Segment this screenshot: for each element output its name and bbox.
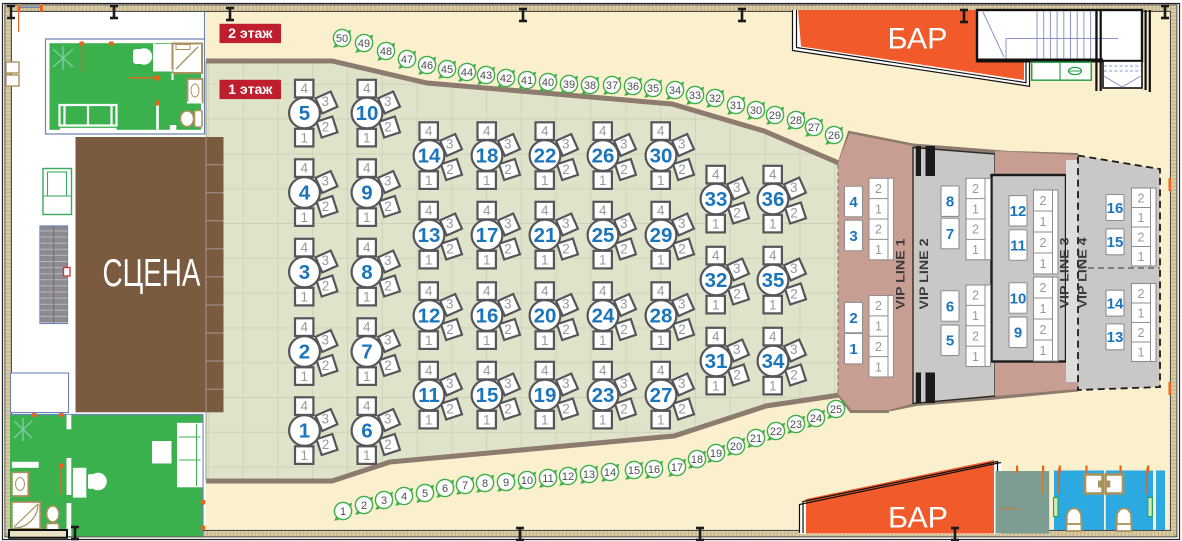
svg-text:2: 2 xyxy=(678,242,686,257)
svg-text:2: 2 xyxy=(1040,281,1047,295)
svg-text:2: 2 xyxy=(446,322,454,337)
svg-text:2: 2 xyxy=(562,402,570,417)
svg-text:2: 2 xyxy=(1138,326,1145,340)
svg-text:7: 7 xyxy=(361,341,372,364)
svg-text:10: 10 xyxy=(521,475,533,487)
svg-text:1 этаж: 1 этаж xyxy=(228,82,273,98)
svg-text:2: 2 xyxy=(733,206,741,221)
svg-text:5: 5 xyxy=(946,333,954,350)
svg-text:4: 4 xyxy=(712,329,720,344)
svg-text:2: 2 xyxy=(972,289,979,303)
svg-text:2: 2 xyxy=(446,242,454,257)
svg-text:БАР: БАР xyxy=(888,23,948,56)
svg-text:1: 1 xyxy=(1138,211,1145,225)
svg-text:9: 9 xyxy=(1014,325,1022,342)
svg-text:2: 2 xyxy=(504,162,512,177)
svg-text:2: 2 xyxy=(562,162,570,177)
svg-text:1: 1 xyxy=(599,412,607,427)
svg-text:4: 4 xyxy=(425,203,433,218)
svg-text:1: 1 xyxy=(657,173,665,188)
svg-text:44: 44 xyxy=(461,67,473,79)
svg-text:35: 35 xyxy=(647,83,659,95)
svg-text:1: 1 xyxy=(300,369,308,384)
svg-text:29: 29 xyxy=(650,224,673,247)
svg-text:3: 3 xyxy=(384,412,392,427)
svg-text:2: 2 xyxy=(733,368,741,383)
svg-text:1: 1 xyxy=(340,506,346,518)
svg-text:2: 2 xyxy=(875,223,882,237)
svg-text:18: 18 xyxy=(476,145,499,168)
svg-text:39: 39 xyxy=(563,79,575,91)
svg-text:1: 1 xyxy=(300,289,308,304)
svg-text:20: 20 xyxy=(730,441,742,453)
svg-text:34: 34 xyxy=(762,350,785,373)
svg-text:14: 14 xyxy=(418,145,441,168)
svg-text:1: 1 xyxy=(1040,215,1047,229)
svg-text:31: 31 xyxy=(705,350,728,373)
svg-text:4: 4 xyxy=(425,124,433,139)
svg-text:28: 28 xyxy=(790,115,802,127)
svg-text:2: 2 xyxy=(678,162,686,177)
svg-text:3: 3 xyxy=(620,376,628,391)
svg-text:1: 1 xyxy=(363,448,371,463)
svg-text:2: 2 xyxy=(384,279,392,294)
svg-text:4: 4 xyxy=(769,329,777,344)
svg-text:4: 4 xyxy=(483,203,491,218)
svg-text:4: 4 xyxy=(657,363,665,378)
svg-text:8: 8 xyxy=(946,194,954,211)
svg-text:3: 3 xyxy=(562,376,570,391)
svg-text:4: 4 xyxy=(401,491,407,503)
svg-text:3: 3 xyxy=(446,137,454,152)
svg-text:2: 2 xyxy=(972,182,979,196)
svg-text:16: 16 xyxy=(476,305,499,328)
svg-text:4: 4 xyxy=(425,363,433,378)
svg-text:30: 30 xyxy=(650,145,673,168)
svg-text:27: 27 xyxy=(808,122,820,134)
svg-text:2: 2 xyxy=(875,340,882,354)
svg-text:22: 22 xyxy=(770,426,782,438)
svg-text:2: 2 xyxy=(620,322,628,337)
svg-text:3: 3 xyxy=(790,180,798,195)
svg-text:2 этаж: 2 этаж xyxy=(228,26,273,42)
svg-text:1: 1 xyxy=(541,173,549,188)
svg-text:36: 36 xyxy=(762,188,785,211)
svg-text:26: 26 xyxy=(828,130,840,142)
svg-text:3: 3 xyxy=(733,180,741,195)
svg-text:1: 1 xyxy=(712,297,720,312)
svg-text:4: 4 xyxy=(363,81,371,96)
svg-text:3: 3 xyxy=(504,376,512,391)
svg-text:2: 2 xyxy=(733,287,741,302)
svg-text:2: 2 xyxy=(620,162,628,177)
svg-text:1: 1 xyxy=(712,378,720,393)
svg-text:29: 29 xyxy=(769,110,781,122)
svg-text:36: 36 xyxy=(627,81,639,93)
svg-text:1: 1 xyxy=(300,210,308,225)
svg-text:4: 4 xyxy=(483,124,491,139)
svg-text:1: 1 xyxy=(1040,302,1047,316)
svg-text:VIP LINE 2: VIP LINE 2 xyxy=(919,239,931,310)
svg-text:49: 49 xyxy=(358,38,370,50)
svg-text:1: 1 xyxy=(363,210,371,225)
svg-text:2: 2 xyxy=(384,199,392,214)
svg-text:2: 2 xyxy=(504,242,512,257)
svg-text:3: 3 xyxy=(504,297,512,312)
svg-text:4: 4 xyxy=(769,167,777,182)
svg-text:25: 25 xyxy=(592,224,615,247)
svg-text:17: 17 xyxy=(476,224,499,247)
svg-text:3: 3 xyxy=(790,261,798,276)
svg-text:3: 3 xyxy=(322,412,330,427)
svg-text:3: 3 xyxy=(384,253,392,268)
svg-text:42: 42 xyxy=(500,73,512,85)
svg-text:4: 4 xyxy=(300,320,308,335)
svg-text:14: 14 xyxy=(1107,296,1124,313)
svg-text:4: 4 xyxy=(541,363,549,378)
svg-text:2: 2 xyxy=(1138,230,1145,244)
svg-text:2: 2 xyxy=(875,182,882,196)
svg-text:38: 38 xyxy=(584,80,596,92)
svg-text:2: 2 xyxy=(620,402,628,417)
svg-text:СЦЕНА: СЦЕНА xyxy=(103,252,201,295)
svg-text:8: 8 xyxy=(361,261,372,284)
svg-text:2: 2 xyxy=(972,223,979,237)
svg-text:48: 48 xyxy=(380,46,392,58)
svg-text:2: 2 xyxy=(1040,194,1047,208)
svg-text:VIP LINE 4: VIP LINE 4 xyxy=(1078,237,1090,309)
svg-text:1: 1 xyxy=(425,333,433,348)
svg-text:1: 1 xyxy=(363,289,371,304)
svg-text:1: 1 xyxy=(972,309,979,323)
svg-text:4: 4 xyxy=(657,203,665,218)
svg-text:34: 34 xyxy=(669,85,681,97)
svg-text:2: 2 xyxy=(790,287,798,302)
svg-text:1: 1 xyxy=(363,369,371,384)
svg-text:4: 4 xyxy=(657,124,665,139)
svg-text:3: 3 xyxy=(678,216,686,231)
svg-text:11: 11 xyxy=(418,384,440,407)
svg-text:3: 3 xyxy=(384,333,392,348)
svg-text:20: 20 xyxy=(534,305,557,328)
svg-text:3: 3 xyxy=(678,137,686,152)
svg-text:2: 2 xyxy=(790,206,798,221)
svg-text:4: 4 xyxy=(299,182,311,205)
svg-text:1: 1 xyxy=(541,412,549,427)
svg-text:4: 4 xyxy=(541,203,549,218)
svg-text:33: 33 xyxy=(689,90,701,102)
svg-text:1: 1 xyxy=(1138,306,1145,320)
svg-text:1: 1 xyxy=(657,333,665,348)
svg-text:1: 1 xyxy=(1040,344,1047,358)
svg-text:2: 2 xyxy=(1040,323,1047,337)
svg-text:1: 1 xyxy=(849,341,857,358)
svg-text:1: 1 xyxy=(657,252,665,267)
svg-text:2: 2 xyxy=(322,437,330,452)
svg-text:3: 3 xyxy=(620,216,628,231)
svg-text:15: 15 xyxy=(628,465,640,477)
svg-text:4: 4 xyxy=(483,363,491,378)
svg-text:4: 4 xyxy=(300,399,308,414)
svg-text:24: 24 xyxy=(592,305,615,328)
svg-text:1: 1 xyxy=(972,243,979,257)
svg-text:2: 2 xyxy=(384,358,392,373)
svg-text:13: 13 xyxy=(1107,329,1124,346)
svg-text:1: 1 xyxy=(300,130,308,145)
svg-text:1: 1 xyxy=(599,333,607,348)
svg-text:2: 2 xyxy=(322,279,330,294)
svg-text:21: 21 xyxy=(534,224,557,247)
svg-text:27: 27 xyxy=(650,384,673,407)
svg-text:33: 33 xyxy=(705,188,728,211)
svg-text:3: 3 xyxy=(849,228,857,245)
svg-text:4: 4 xyxy=(541,124,549,139)
svg-text:1: 1 xyxy=(769,216,777,231)
svg-text:2: 2 xyxy=(1040,236,1047,250)
svg-text:1: 1 xyxy=(1138,345,1145,359)
svg-text:2: 2 xyxy=(562,322,570,337)
svg-text:3: 3 xyxy=(384,174,392,189)
svg-text:2: 2 xyxy=(1138,191,1145,205)
svg-text:3: 3 xyxy=(678,376,686,391)
svg-text:4: 4 xyxy=(599,284,607,299)
svg-text:1: 1 xyxy=(875,320,882,334)
svg-text:1: 1 xyxy=(972,202,979,216)
svg-text:2: 2 xyxy=(446,162,454,177)
svg-text:24: 24 xyxy=(810,413,822,425)
svg-text:46: 46 xyxy=(421,60,433,72)
svg-text:6: 6 xyxy=(442,483,448,495)
svg-text:5: 5 xyxy=(299,102,310,125)
svg-text:2: 2 xyxy=(384,437,392,452)
svg-text:VIP LINE 1: VIP LINE 1 xyxy=(896,238,908,310)
svg-text:9: 9 xyxy=(361,182,372,205)
svg-text:12: 12 xyxy=(1010,203,1027,220)
svg-text:3: 3 xyxy=(446,297,454,312)
svg-text:16: 16 xyxy=(1107,200,1124,217)
svg-text:47: 47 xyxy=(401,54,413,66)
svg-text:1: 1 xyxy=(972,350,979,364)
svg-text:32: 32 xyxy=(705,269,728,292)
svg-text:2: 2 xyxy=(562,242,570,257)
svg-text:2: 2 xyxy=(299,341,310,364)
svg-text:4: 4 xyxy=(712,167,720,182)
svg-text:12: 12 xyxy=(562,471,574,483)
svg-text:2: 2 xyxy=(322,120,330,135)
svg-text:2: 2 xyxy=(446,402,454,417)
svg-text:18: 18 xyxy=(691,454,703,466)
svg-text:4: 4 xyxy=(541,284,549,299)
svg-text:13: 13 xyxy=(583,469,595,481)
svg-text:9: 9 xyxy=(503,477,509,489)
svg-text:2: 2 xyxy=(678,322,686,337)
svg-text:41: 41 xyxy=(521,75,533,87)
svg-text:1: 1 xyxy=(541,252,549,267)
svg-text:23: 23 xyxy=(790,419,802,431)
svg-text:37: 37 xyxy=(606,80,618,92)
svg-text:3: 3 xyxy=(322,94,330,109)
svg-text:31: 31 xyxy=(730,100,742,112)
svg-text:4: 4 xyxy=(300,81,308,96)
svg-text:2: 2 xyxy=(322,199,330,214)
svg-text:15: 15 xyxy=(1107,234,1124,251)
svg-text:10: 10 xyxy=(356,102,379,125)
svg-text:4: 4 xyxy=(363,161,371,176)
svg-text:1: 1 xyxy=(769,297,777,312)
svg-text:3: 3 xyxy=(678,297,686,312)
svg-text:3: 3 xyxy=(733,261,741,276)
svg-text:43: 43 xyxy=(480,70,492,82)
svg-text:1: 1 xyxy=(425,252,433,267)
svg-text:1: 1 xyxy=(875,243,882,257)
svg-text:2: 2 xyxy=(1138,287,1145,301)
svg-text:17: 17 xyxy=(671,462,683,474)
svg-text:3: 3 xyxy=(322,174,330,189)
svg-text:19: 19 xyxy=(534,384,557,407)
svg-text:15: 15 xyxy=(476,384,499,407)
svg-text:3: 3 xyxy=(504,137,512,152)
svg-text:3: 3 xyxy=(562,297,570,312)
svg-text:5: 5 xyxy=(422,488,428,500)
svg-text:7: 7 xyxy=(462,480,468,492)
svg-text:6: 6 xyxy=(361,420,372,443)
svg-text:2: 2 xyxy=(322,358,330,373)
svg-text:32: 32 xyxy=(709,93,721,105)
svg-text:1: 1 xyxy=(875,360,882,374)
svg-text:VIP LINE 3: VIP LINE 3 xyxy=(1060,238,1072,309)
svg-text:3: 3 xyxy=(384,94,392,109)
svg-text:4: 4 xyxy=(483,284,491,299)
svg-text:4: 4 xyxy=(363,399,371,414)
svg-text:40: 40 xyxy=(542,77,554,89)
svg-text:3: 3 xyxy=(733,342,741,357)
svg-text:2: 2 xyxy=(620,242,628,257)
svg-text:22: 22 xyxy=(534,145,557,168)
svg-text:2: 2 xyxy=(678,402,686,417)
svg-text:4: 4 xyxy=(599,363,607,378)
svg-text:2: 2 xyxy=(384,120,392,135)
svg-text:2: 2 xyxy=(972,329,979,343)
svg-text:50: 50 xyxy=(336,33,348,45)
svg-text:1: 1 xyxy=(300,448,308,463)
svg-text:3: 3 xyxy=(446,376,454,391)
svg-text:1: 1 xyxy=(1040,257,1047,271)
svg-text:1: 1 xyxy=(299,420,310,443)
svg-text:3: 3 xyxy=(620,137,628,152)
svg-text:2: 2 xyxy=(790,368,798,383)
svg-text:4: 4 xyxy=(712,248,720,263)
svg-text:1: 1 xyxy=(425,412,433,427)
svg-text:19: 19 xyxy=(710,448,722,460)
svg-text:1: 1 xyxy=(599,173,607,188)
svg-text:4: 4 xyxy=(769,248,777,263)
svg-text:3: 3 xyxy=(562,137,570,152)
svg-text:4: 4 xyxy=(657,284,665,299)
svg-text:4: 4 xyxy=(363,320,371,335)
svg-text:1: 1 xyxy=(483,252,491,267)
svg-text:1: 1 xyxy=(541,333,549,348)
svg-text:13: 13 xyxy=(418,224,441,247)
svg-text:4: 4 xyxy=(599,124,607,139)
svg-text:35: 35 xyxy=(762,269,785,292)
svg-text:3: 3 xyxy=(299,261,310,284)
svg-text:БАР: БАР xyxy=(888,502,948,535)
svg-text:1: 1 xyxy=(769,378,777,393)
svg-text:3: 3 xyxy=(790,342,798,357)
svg-text:2: 2 xyxy=(504,322,512,337)
svg-text:3: 3 xyxy=(381,495,387,507)
svg-text:4: 4 xyxy=(300,240,308,255)
svg-text:10: 10 xyxy=(1010,290,1027,307)
svg-text:4: 4 xyxy=(425,284,433,299)
svg-text:23: 23 xyxy=(592,384,615,407)
svg-text:11: 11 xyxy=(542,473,553,485)
svg-text:45: 45 xyxy=(441,64,453,76)
svg-text:1: 1 xyxy=(712,216,720,231)
svg-text:1: 1 xyxy=(483,173,491,188)
svg-text:4: 4 xyxy=(599,203,607,218)
svg-text:21: 21 xyxy=(750,433,762,445)
svg-text:3: 3 xyxy=(562,216,570,231)
svg-text:11: 11 xyxy=(1010,237,1026,254)
svg-text:1: 1 xyxy=(483,333,491,348)
svg-text:16: 16 xyxy=(648,464,660,476)
svg-text:8: 8 xyxy=(482,478,488,490)
svg-text:4: 4 xyxy=(849,194,858,211)
svg-text:4: 4 xyxy=(300,161,308,176)
svg-text:3: 3 xyxy=(322,253,330,268)
svg-text:26: 26 xyxy=(592,145,615,168)
svg-text:12: 12 xyxy=(418,305,441,328)
svg-text:2: 2 xyxy=(875,299,882,313)
svg-text:3: 3 xyxy=(504,216,512,231)
svg-text:2: 2 xyxy=(504,402,512,417)
svg-text:3: 3 xyxy=(446,216,454,231)
svg-text:3: 3 xyxy=(322,333,330,348)
svg-text:1: 1 xyxy=(483,412,491,427)
svg-text:1: 1 xyxy=(425,173,433,188)
svg-text:14: 14 xyxy=(604,467,616,479)
svg-text:1: 1 xyxy=(875,202,882,216)
svg-text:1: 1 xyxy=(363,130,371,145)
svg-text:25: 25 xyxy=(830,404,842,416)
svg-text:4: 4 xyxy=(363,240,371,255)
svg-text:2: 2 xyxy=(361,500,367,512)
svg-text:7: 7 xyxy=(946,226,954,243)
svg-text:1: 1 xyxy=(657,412,665,427)
svg-text:1: 1 xyxy=(1138,250,1145,264)
svg-text:30: 30 xyxy=(750,105,762,117)
svg-text:28: 28 xyxy=(650,305,673,328)
svg-text:3: 3 xyxy=(620,297,628,312)
svg-text:2: 2 xyxy=(849,310,857,327)
svg-text:6: 6 xyxy=(946,298,954,315)
svg-text:1: 1 xyxy=(599,252,607,267)
